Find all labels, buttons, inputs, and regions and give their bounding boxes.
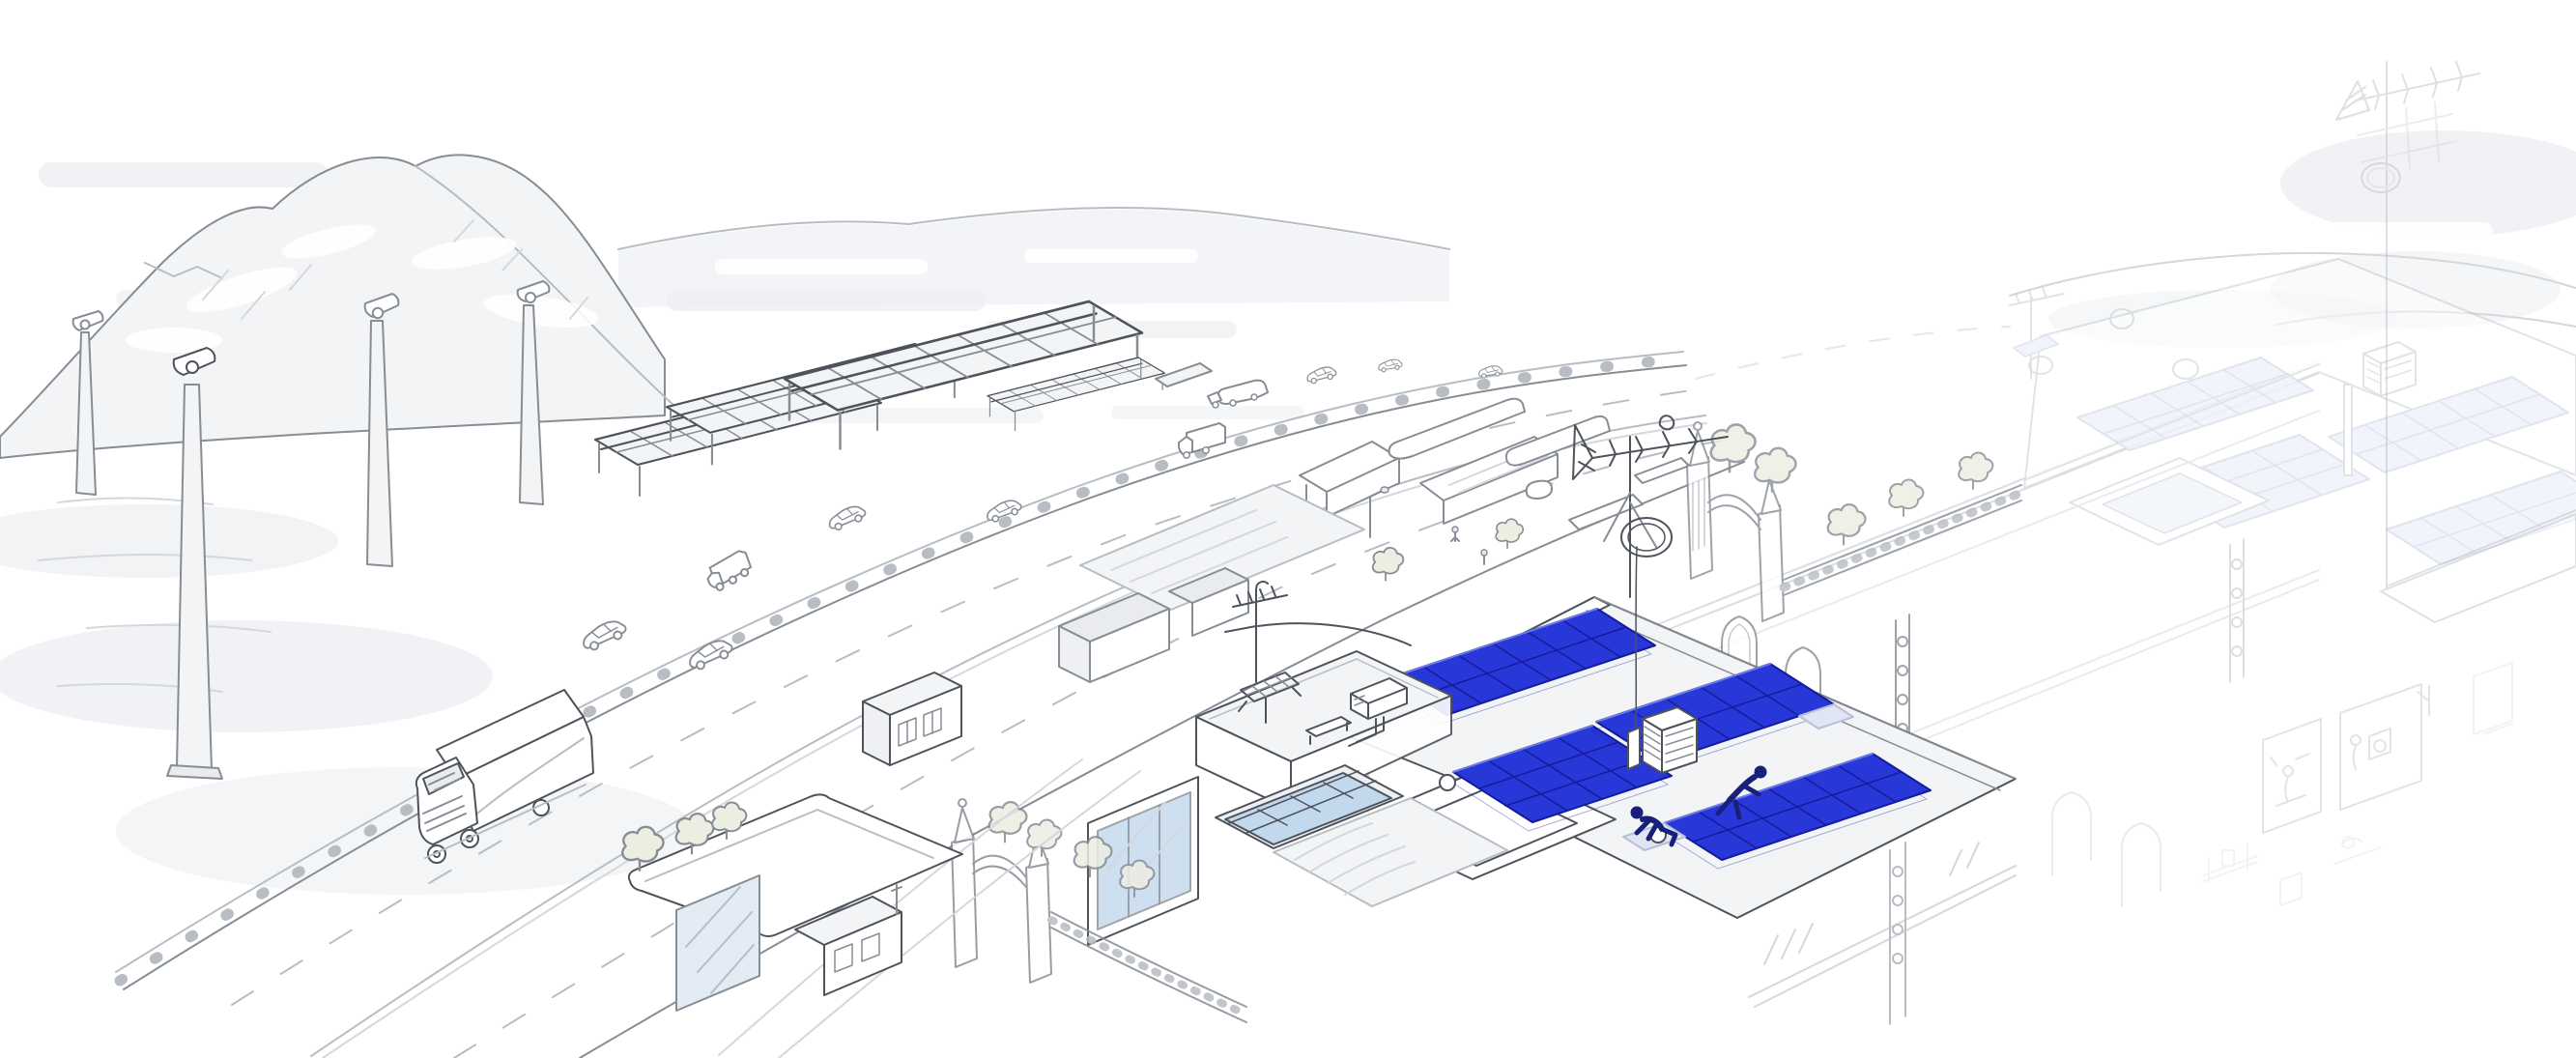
arched-window bbox=[2052, 792, 2161, 906]
street-lamp bbox=[1370, 487, 1388, 537]
bush bbox=[600, 702, 650, 740]
roof-tree bbox=[1959, 452, 1992, 489]
rounded-roof bbox=[1635, 458, 1689, 483]
car bbox=[686, 636, 735, 672]
roof-tree bbox=[1755, 448, 1795, 492]
car bbox=[826, 502, 868, 532]
tree bbox=[1496, 519, 1523, 548]
bottom-fade bbox=[0, 899, 2576, 1058]
roof-tree bbox=[1828, 504, 1866, 544]
laundry-room bbox=[2340, 684, 2429, 810]
bush bbox=[498, 904, 598, 979]
roof-tree bbox=[1711, 424, 1756, 472]
car bbox=[1378, 358, 1403, 373]
cable-post bbox=[1628, 728, 1640, 769]
illustration-canvas: Hand-drawn isometric cityscape: wind tur… bbox=[0, 0, 2576, 1058]
mountain-ridge-center bbox=[618, 208, 1449, 307]
rounded-roof bbox=[1527, 481, 1552, 499]
hvac-unit bbox=[1643, 707, 1697, 773]
office-room bbox=[2203, 837, 2381, 905]
pilaster-strip bbox=[1890, 843, 1905, 1024]
spire-pilaster bbox=[1687, 422, 1712, 579]
car bbox=[580, 616, 629, 653]
hanging-cable bbox=[1636, 547, 1637, 725]
apartment-interiors bbox=[2203, 684, 2429, 905]
shower-room bbox=[2263, 719, 2321, 833]
rounded-roof bbox=[1569, 495, 1643, 529]
canopy-strip bbox=[1156, 363, 1212, 386]
mountain-range-left bbox=[0, 155, 696, 895]
roof-tree bbox=[1889, 479, 1923, 516]
shed bbox=[1059, 593, 1169, 682]
box-truck bbox=[702, 549, 755, 592]
panel-cable bbox=[1258, 623, 1411, 645]
tanker-truck bbox=[1208, 381, 1268, 408]
parapet-arch bbox=[973, 856, 1026, 887]
balusters bbox=[1051, 920, 1246, 1015]
pedestrian bbox=[1481, 550, 1487, 564]
spire-pilaster bbox=[952, 799, 977, 967]
city-solar-illustration bbox=[0, 0, 2576, 1058]
car bbox=[1305, 365, 1337, 385]
highway-continuation bbox=[1696, 327, 2010, 379]
pedestrian bbox=[1451, 527, 1459, 541]
bush bbox=[1057, 512, 1096, 541]
bush bbox=[937, 553, 982, 586]
tree bbox=[1373, 548, 1404, 581]
small-building bbox=[863, 672, 961, 765]
panel-mount-bracket bbox=[1440, 775, 1455, 790]
terrace-arch bbox=[1708, 495, 1760, 529]
balustrade bbox=[1051, 912, 1246, 1022]
spire-pilaster bbox=[1759, 472, 1784, 621]
